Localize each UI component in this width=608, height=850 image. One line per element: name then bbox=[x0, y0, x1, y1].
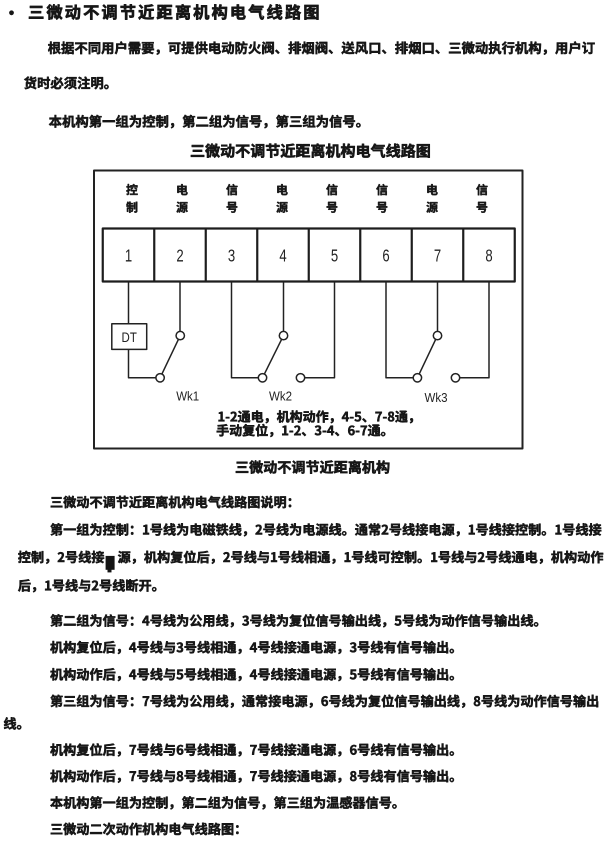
svg-text:DT: DT bbox=[122, 330, 138, 345]
svg-text:Wk2: Wk2 bbox=[269, 389, 292, 404]
svg-text:1: 1 bbox=[125, 247, 132, 266]
svg-text:3: 3 bbox=[228, 247, 235, 266]
svg-text:Wk1: Wk1 bbox=[176, 389, 199, 404]
svg-text:6: 6 bbox=[382, 247, 389, 266]
svg-text:Wk3: Wk3 bbox=[425, 391, 448, 406]
svg-text:5: 5 bbox=[331, 247, 338, 266]
svg-text:8: 8 bbox=[485, 247, 492, 266]
svg-text:2: 2 bbox=[176, 247, 183, 266]
svg-text:4: 4 bbox=[279, 247, 287, 266]
svg-text:7: 7 bbox=[434, 247, 441, 266]
